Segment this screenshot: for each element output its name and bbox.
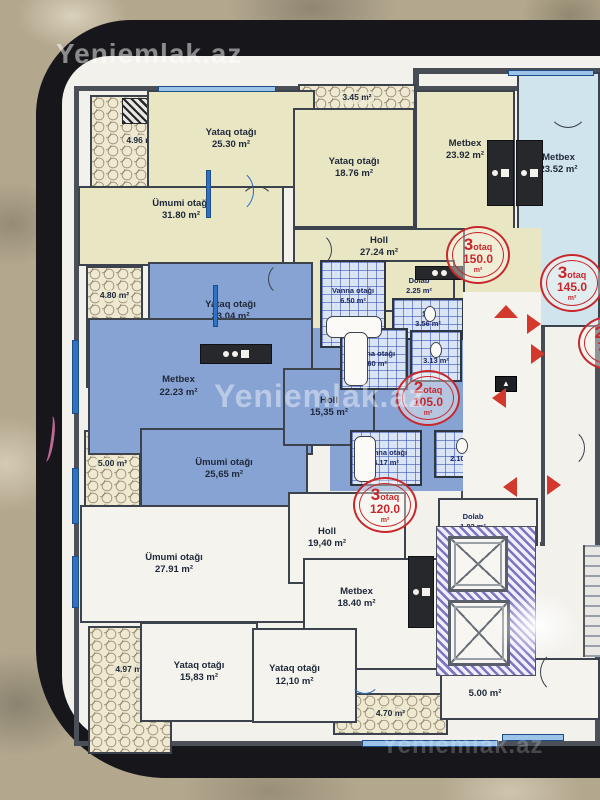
room-area: 6.50 m² (340, 296, 366, 306)
room-area: 27.91 m² (155, 564, 193, 576)
badge-title: 2 otaq (595, 324, 600, 341)
balcony-door (213, 285, 218, 327)
badge-3otaq-150: 3 otaq 150.0 m² (446, 226, 510, 284)
room-area: 18.40 m² (337, 598, 375, 610)
room-yataq-1583: Yataq otağı 15,83 m² (140, 622, 258, 722)
badge-3otaq-120: 3 otaq 120.0 m² (353, 477, 417, 533)
door-arc (296, 232, 332, 268)
red-arrow-right-icon (531, 344, 545, 364)
badge-title: 3 otaq (464, 236, 492, 253)
room-area: 19,40 m² (308, 538, 346, 550)
room-name: Holl (370, 235, 388, 247)
room-umumi-2791: Ümumi otağı 27.91 m² (80, 505, 308, 623)
toilet-icon (424, 306, 436, 322)
room-area: 23.92 m² (446, 150, 484, 162)
watermark: Yeniemlak.az (214, 378, 425, 415)
door-arc (350, 664, 380, 694)
room-area: 22.23 m² (159, 387, 197, 399)
door-arc (545, 428, 585, 468)
room-name: Ümumi otağı (145, 552, 203, 564)
room-name: Metbex (449, 138, 482, 150)
room-area: 18.76 m² (335, 168, 373, 180)
badge-title: 3 otaq (371, 486, 399, 503)
balcony-area: 5.00 m² (96, 458, 129, 469)
red-arrow-right-icon (547, 475, 561, 495)
room-name: Metbex (542, 152, 575, 164)
room-name: Metbex (340, 586, 373, 598)
red-arrow-left-icon (503, 477, 517, 497)
room-name: Ümumi otağı (195, 457, 253, 469)
room-name: Yataq otağı (206, 127, 257, 139)
room-area: 25.30 m² (212, 139, 250, 151)
room-name: Yataq otağı (174, 660, 225, 672)
room-area: 15,83 m² (180, 672, 218, 684)
red-arrow-left-icon (492, 388, 506, 408)
balcony-area: 4.70 m² (374, 708, 407, 719)
balcony-area: 3.45 m² (340, 92, 373, 103)
room-area: 23.52 m² (539, 164, 577, 176)
room-area: 27.24 m² (360, 247, 398, 259)
balcony-area: 4.80 m² (98, 290, 131, 301)
window (72, 468, 79, 524)
bathtub-icon (354, 436, 376, 482)
room-area: 4.17 m² (373, 458, 399, 468)
room-yataq-1876: Yataq otağı 18.76 m² (293, 108, 415, 228)
badge-3otaq-145: 3 otaq 145.0 m² (540, 254, 600, 312)
red-arrow-right-icon (527, 314, 541, 334)
watermark: Yeniemlak.az (382, 732, 543, 760)
room-name: Yataq otağı (269, 663, 320, 675)
room-area: 25,65 m² (205, 469, 243, 481)
room-name: Holl (318, 526, 336, 538)
room-name: Ümumi otağı (152, 198, 210, 210)
door-arc (548, 88, 588, 128)
camera-glare (478, 578, 598, 673)
room-name: Yataq otağı (329, 156, 380, 168)
room-name: Dolab (463, 512, 484, 522)
watermark: Yeniemlak.az (56, 38, 242, 70)
toilet-icon (430, 342, 442, 358)
kitchen-counter (516, 140, 543, 206)
room-area: 12,10 m² (275, 676, 313, 688)
room-area: 5.00 m² (469, 688, 502, 700)
toilet-icon (456, 438, 468, 454)
door-arc (240, 186, 274, 220)
window (508, 70, 594, 76)
window (72, 556, 79, 608)
room-yataq-1210: Yataq otağı 12,10 m² (252, 628, 357, 723)
room-area: 31.80 m² (162, 210, 200, 222)
window (158, 86, 276, 92)
room-name: Vanna otağı (332, 286, 374, 296)
window (72, 340, 79, 414)
kitchen-counter (200, 344, 272, 364)
room-area: 2.25 m² (406, 286, 432, 296)
room-name: Metbex (162, 374, 195, 386)
red-arrow-up-icon (494, 305, 518, 318)
door-arc (268, 262, 302, 296)
floorplan-photo: 4.96 m² 3.45 m² 4.80 m² 5.00 m² 4.97 m² … (0, 0, 600, 800)
badge-title: 3 otaq (558, 264, 586, 281)
kitchen-counter (408, 556, 434, 628)
kitchen-counter (487, 140, 514, 206)
